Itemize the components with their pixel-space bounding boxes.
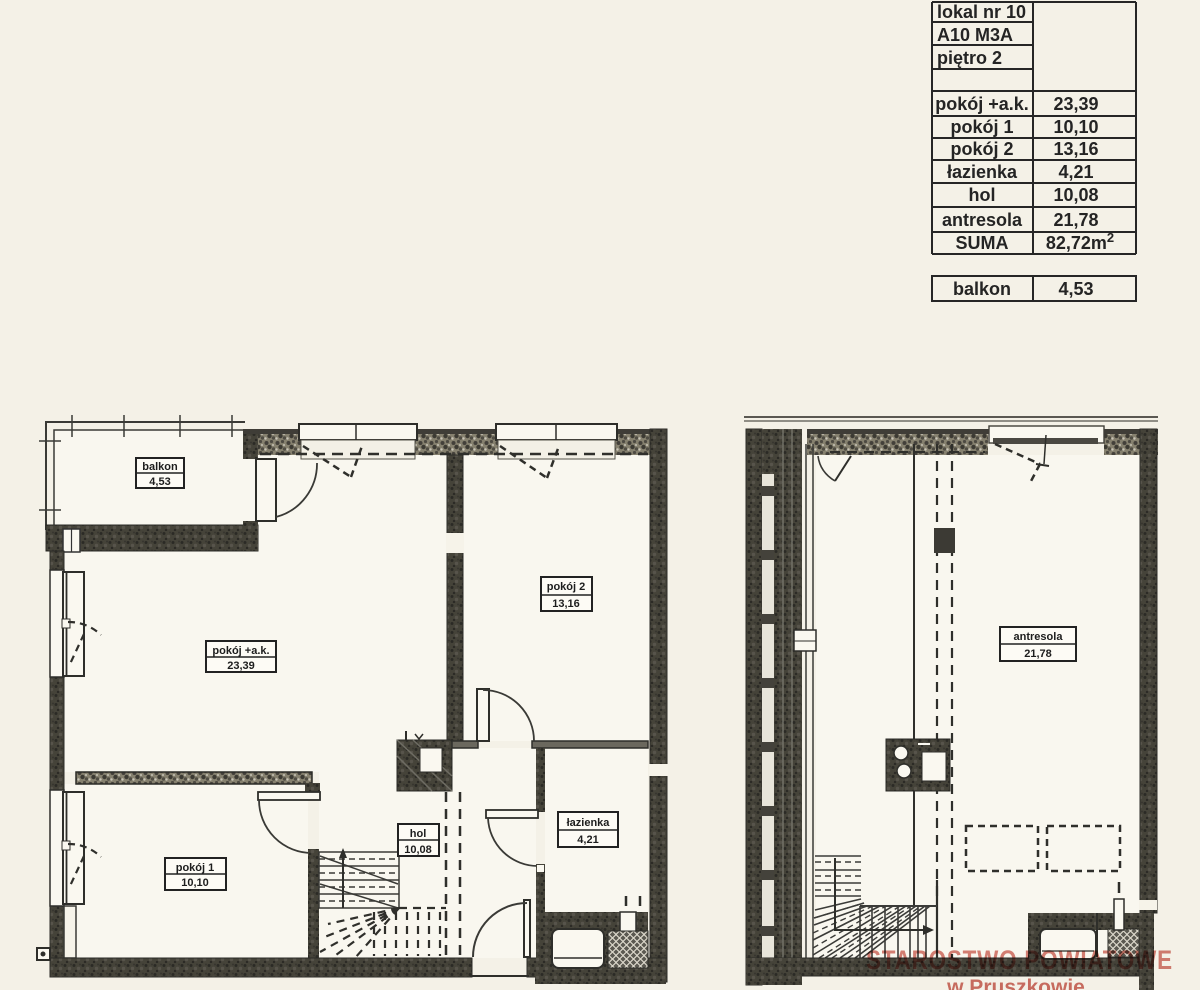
svg-text:łazienka: łazienka <box>567 817 611 829</box>
svg-text:pokój +a.k.: pokój +a.k. <box>935 94 1029 114</box>
svg-text:23,39: 23,39 <box>1053 94 1098 114</box>
svg-text:pokój 2: pokój 2 <box>547 581 586 593</box>
svg-text:10,10: 10,10 <box>1053 117 1098 137</box>
svg-text:pokój 1: pokój 1 <box>950 117 1013 137</box>
svg-text:pokój 2: pokój 2 <box>950 139 1013 159</box>
svg-text:hol: hol <box>969 185 996 205</box>
svg-text:4,21: 4,21 <box>1058 162 1093 182</box>
svg-text:SUMA: SUMA <box>956 233 1009 253</box>
svg-text:lokal nr 10: lokal nr 10 <box>937 2 1026 22</box>
svg-text:hol: hol <box>410 828 427 840</box>
svg-text:82,72m2: 82,72m2 <box>1046 230 1114 253</box>
svg-text:balkon: balkon <box>142 461 178 473</box>
svg-text:pokój 1: pokój 1 <box>176 862 215 874</box>
svg-text:4,21: 4,21 <box>577 834 598 846</box>
svg-text:STAROSTWO POWIATOWE: STAROSTWO POWIATOWE <box>866 946 1173 975</box>
svg-text:4,53: 4,53 <box>149 476 170 488</box>
svg-text:10,10: 10,10 <box>181 877 209 889</box>
svg-text:łazienka: łazienka <box>947 162 1018 182</box>
svg-text:piętro 2: piętro 2 <box>937 48 1002 68</box>
svg-text:13,16: 13,16 <box>1053 139 1098 159</box>
svg-text:10,08: 10,08 <box>1053 185 1098 205</box>
svg-text:A10 M3A: A10 M3A <box>937 25 1013 45</box>
svg-text:w Pruszkowie: w Pruszkowie <box>946 976 1085 990</box>
svg-text:balkon: balkon <box>953 279 1011 299</box>
svg-text:antresola: antresola <box>1014 631 1064 643</box>
svg-text:13,16: 13,16 <box>552 598 580 610</box>
svg-text:pokój +a.k.: pokój +a.k. <box>212 645 269 657</box>
svg-text:4,53: 4,53 <box>1058 279 1093 299</box>
svg-text:21,78: 21,78 <box>1053 210 1098 230</box>
svg-text:21,78: 21,78 <box>1024 648 1052 660</box>
svg-text:antresola: antresola <box>942 210 1023 230</box>
svg-text:23,39: 23,39 <box>227 660 255 672</box>
svg-text:10,08: 10,08 <box>404 844 432 856</box>
